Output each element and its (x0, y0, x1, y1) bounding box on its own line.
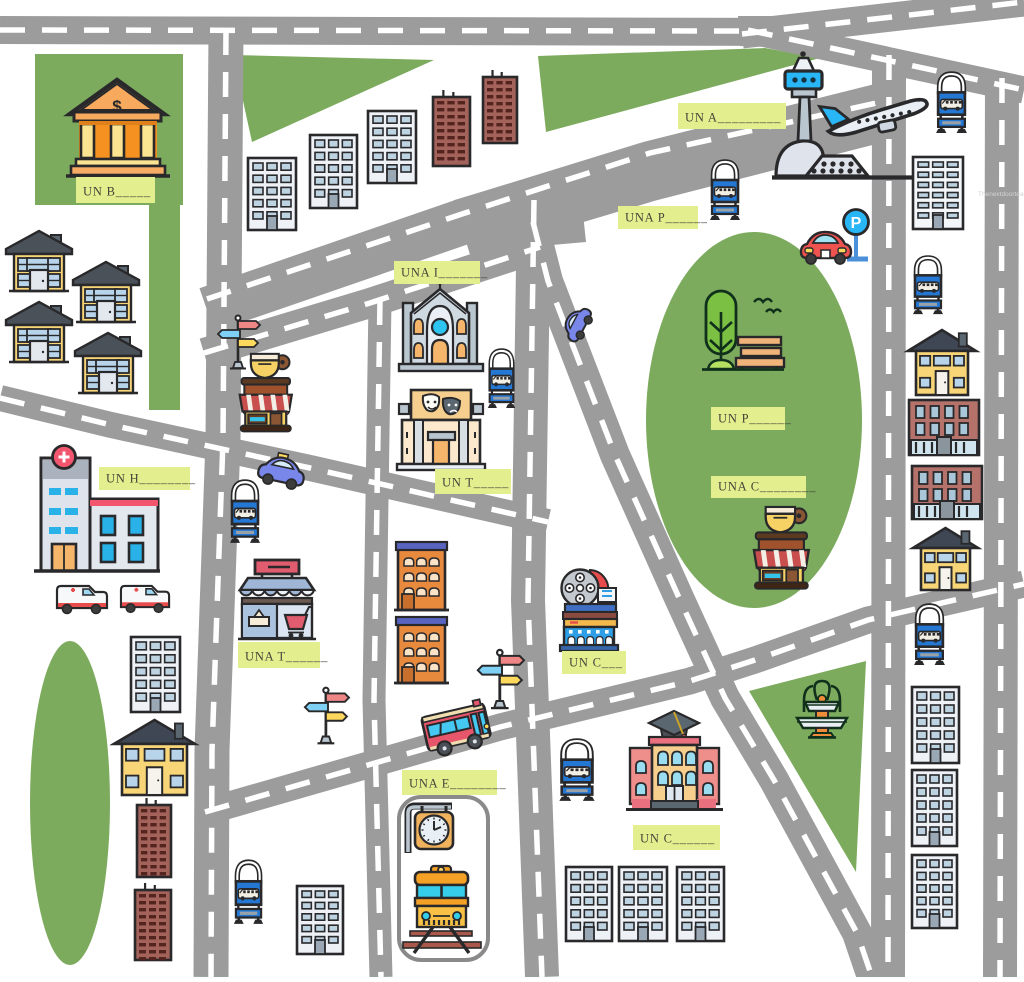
svg-text:UN A_________: UN A_________ (685, 111, 781, 125)
svg-text:UN B_____: UN B_____ (83, 185, 151, 199)
svg-text:UN C___: UN C___ (569, 656, 623, 670)
svg-text:UN P______: UN P______ (718, 412, 792, 426)
svg-text:UN C______: UN C______ (640, 832, 715, 846)
svg-text:UNA I_______: UNA I_______ (401, 266, 488, 280)
svg-text:UN H________: UN H________ (106, 472, 196, 486)
svg-text:P: P (851, 215, 862, 232)
svg-text:UNA P______: UNA P______ (625, 211, 708, 225)
svg-text:UNA E________: UNA E________ (409, 777, 507, 791)
svg-text:Thenextdoorteach: Thenextdoorteach (978, 191, 1024, 198)
svg-text:UNA T______: UNA T______ (245, 650, 328, 664)
svg-text:UN T_____: UN T_____ (442, 476, 509, 490)
svg-text:UNA C________: UNA C________ (718, 480, 816, 494)
